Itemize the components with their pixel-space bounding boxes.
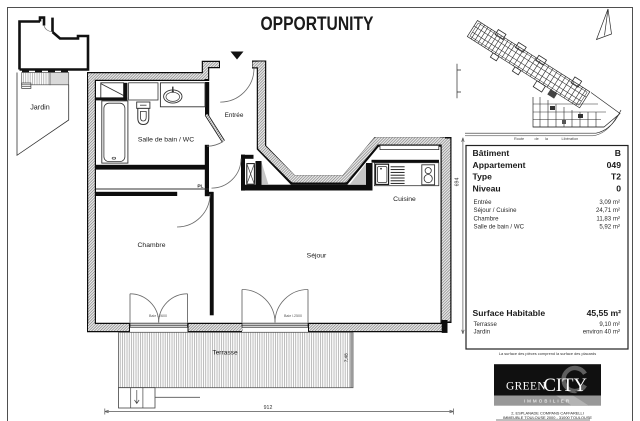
svg-text:Route: Route [514, 137, 524, 141]
svg-text:OPPORTUNITY: OPPORTUNITY [261, 14, 374, 35]
svg-text:Libération: Libération [562, 137, 579, 141]
svg-text:5,92 m²: 5,92 m² [599, 224, 620, 231]
svg-text:PL: PL [197, 183, 203, 189]
svg-text:7,48: 7,48 [344, 353, 349, 362]
svg-text:B: B [615, 148, 621, 158]
svg-text:Salle de bain / WC: Salle de bain / WC [474, 224, 525, 231]
svg-text:GREEN: GREEN [506, 381, 546, 393]
svg-text:45,55 m²: 45,55 m² [587, 308, 622, 318]
svg-text:Chambre: Chambre [138, 242, 166, 249]
svg-text:Jardin: Jardin [30, 103, 50, 112]
svg-text:912: 912 [264, 405, 273, 411]
svg-text:de: de [535, 137, 539, 141]
svg-text:Entrée: Entrée [474, 199, 493, 206]
svg-text:Séjour: Séjour [307, 253, 327, 260]
svg-text:694: 694 [455, 178, 461, 187]
svg-text:Baie l.2600: Baie l.2600 [149, 314, 167, 318]
svg-text:Appartement: Appartement [473, 160, 526, 170]
svg-text:Séjour / Cuisine: Séjour / Cuisine [474, 207, 518, 214]
svg-text:Bâtiment: Bâtiment [473, 148, 510, 158]
svg-text:Jardin: Jardin [474, 328, 491, 335]
svg-text:Chambre: Chambre [474, 215, 500, 222]
svg-text:IMMEUBLE TOULOUSE 2000 - 31000: IMMEUBLE TOULOUSE 2000 - 31000 TOULOUSE [503, 415, 592, 420]
svg-text:Cuisine: Cuisine [393, 196, 416, 203]
svg-text:Baie l.2500: Baie l.2500 [284, 314, 302, 318]
svg-text:environ 40 m²: environ 40 m² [583, 328, 620, 335]
svg-text:Niveau: Niveau [473, 183, 501, 193]
svg-text:0: 0 [616, 183, 621, 193]
svg-text:La surface des pièces comprend: La surface des pièces comprend la surfac… [499, 351, 596, 356]
svg-text:Entrée: Entrée [225, 112, 244, 119]
svg-text:CITY: CITY [544, 375, 587, 396]
svg-text:3,09 m²: 3,09 m² [599, 199, 620, 206]
svg-text:Surface Habitable: Surface Habitable [473, 308, 546, 318]
svg-text:24,71 m²: 24,71 m² [596, 207, 620, 214]
svg-text:Terrasse: Terrasse [212, 350, 238, 357]
svg-text:9,10 m²: 9,10 m² [599, 321, 620, 328]
svg-text:Salle de bain / WC: Salle de bain / WC [138, 137, 194, 144]
svg-text:T2: T2 [611, 172, 621, 182]
svg-text:049: 049 [607, 160, 622, 170]
svg-text:IMMOBILIER: IMMOBILIER [524, 398, 572, 403]
svg-text:Type: Type [473, 172, 493, 182]
svg-text:Terrasse: Terrasse [474, 321, 498, 328]
svg-text:11,83 m²: 11,83 m² [596, 215, 620, 222]
